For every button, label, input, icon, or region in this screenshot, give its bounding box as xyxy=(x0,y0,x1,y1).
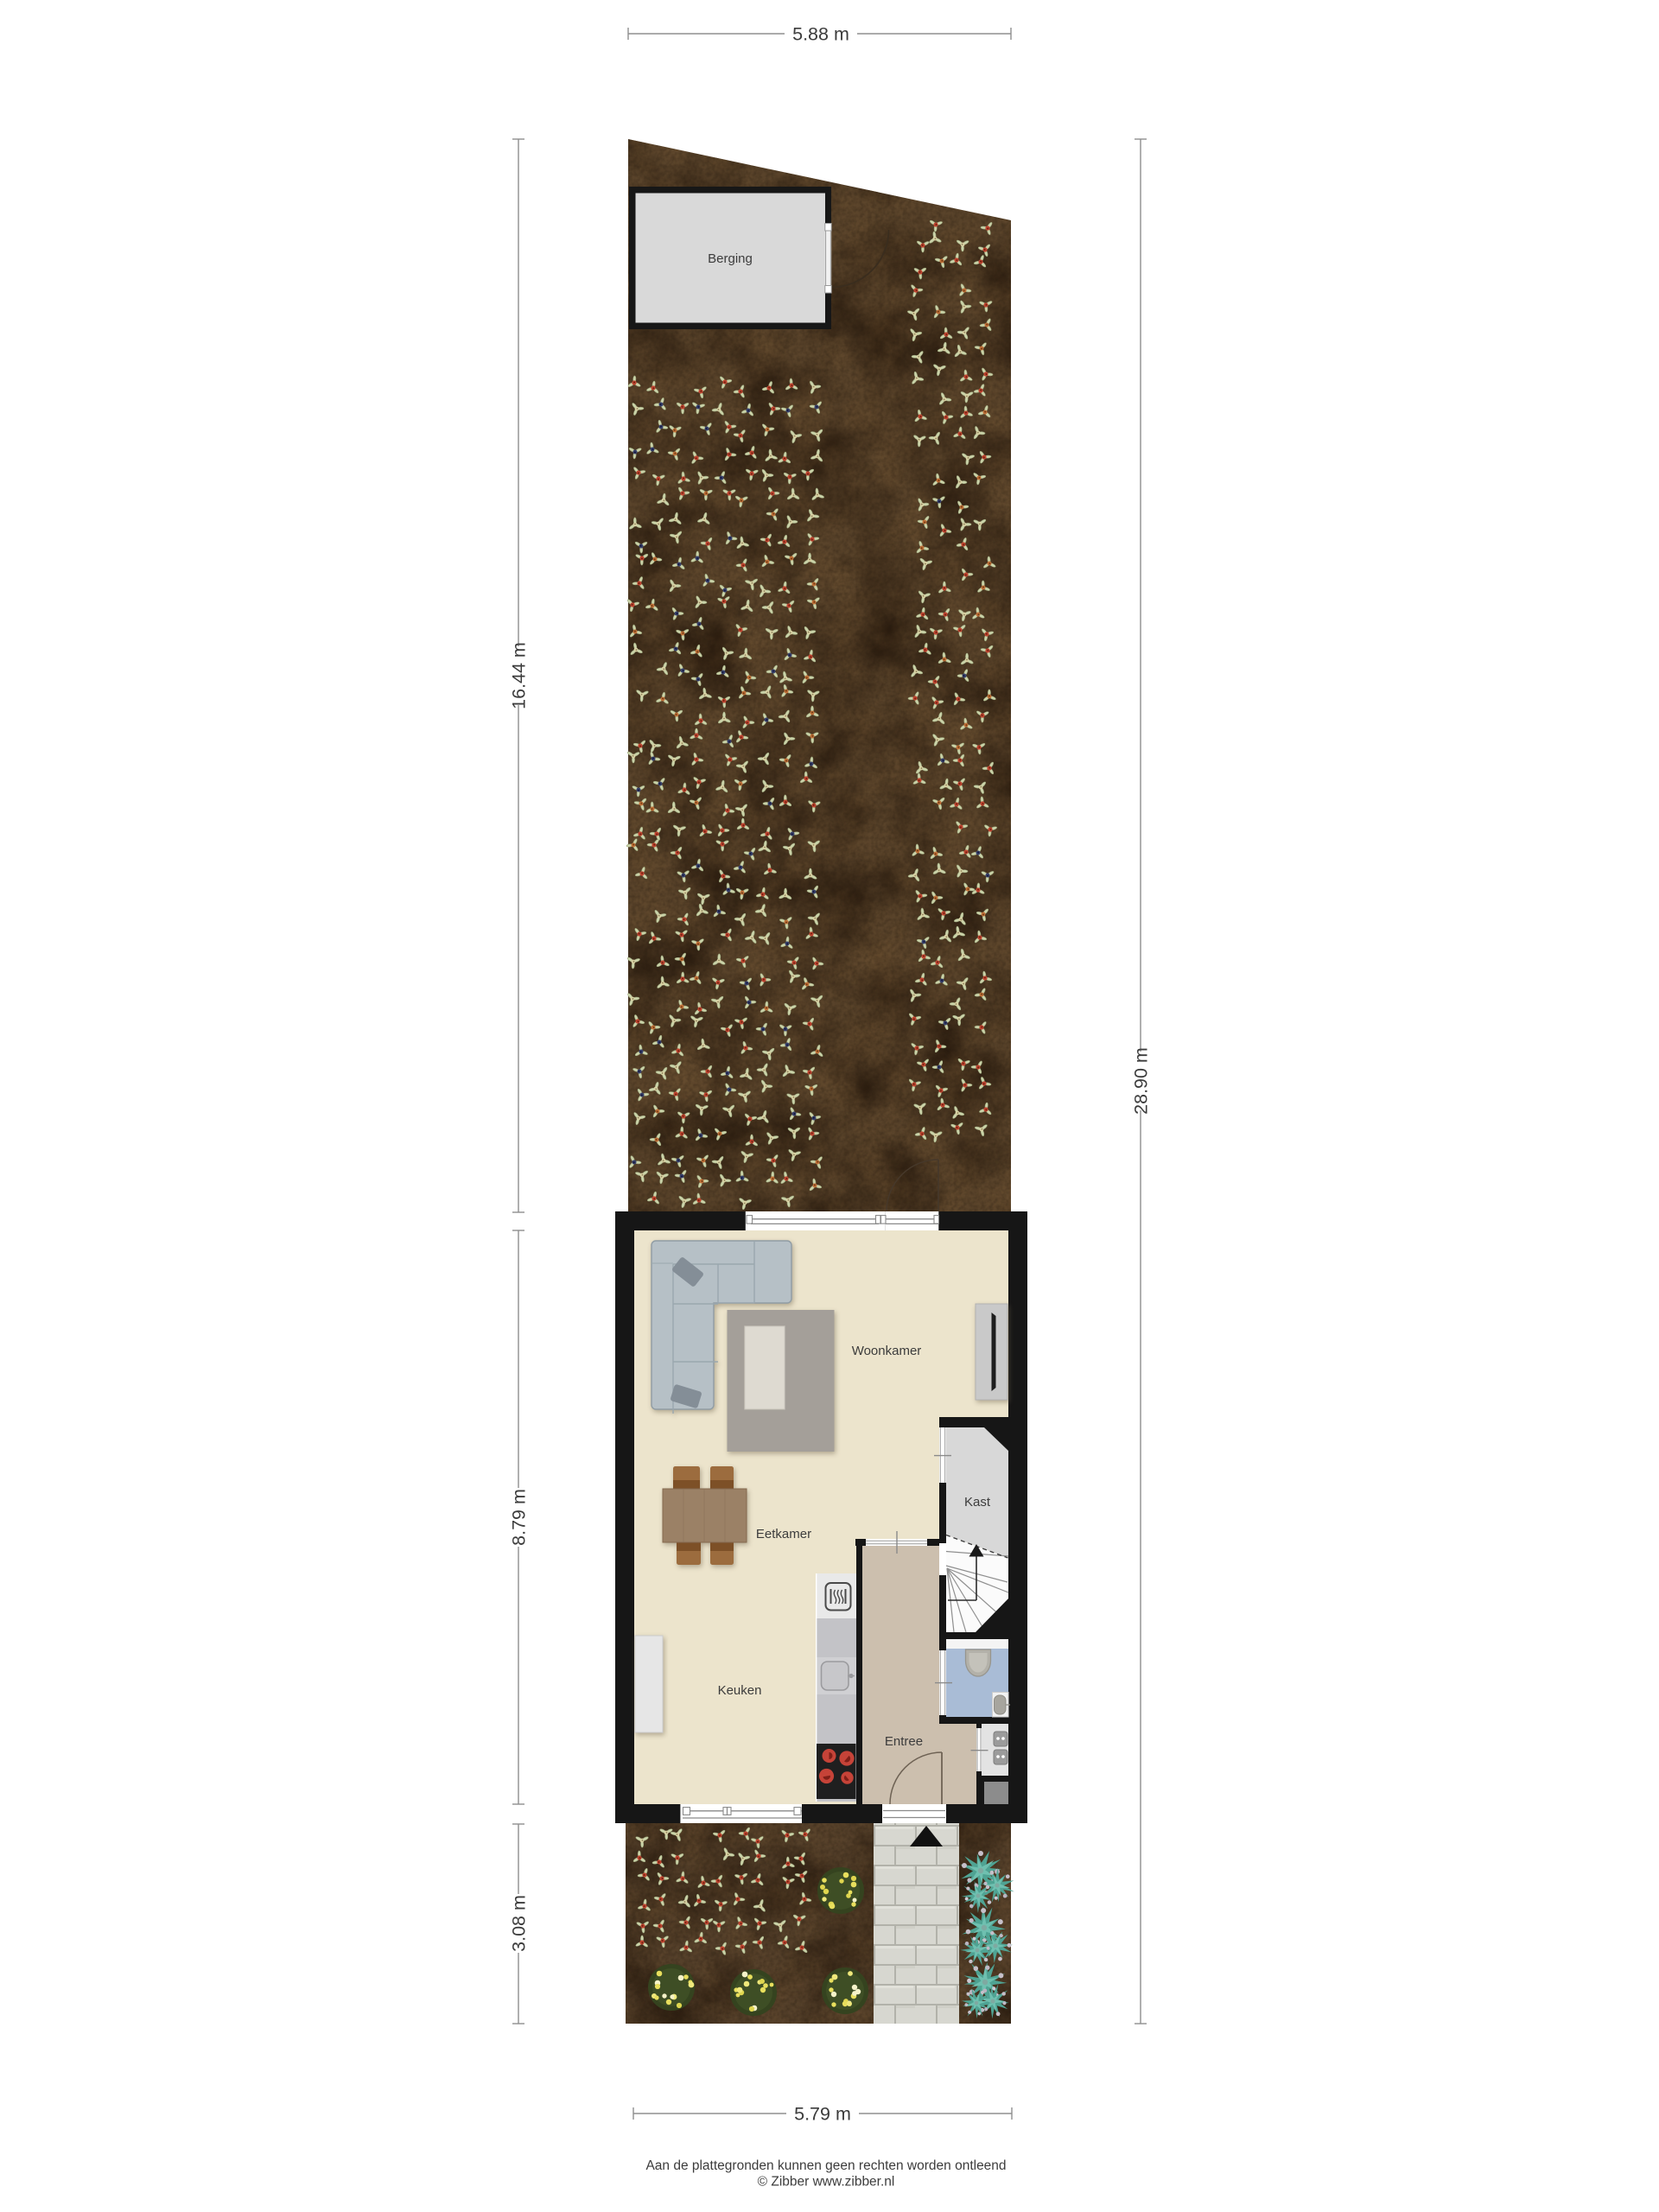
svg-text:28.90 m: 28.90 m xyxy=(1131,1047,1152,1115)
svg-text:5.79 m: 5.79 m xyxy=(794,2104,851,2125)
svg-text:16.44 m: 16.44 m xyxy=(509,642,530,709)
svg-text:Woonkamer: Woonkamer xyxy=(852,1344,922,1358)
svg-text:© Zibber www.zibber.nl: © Zibber www.zibber.nl xyxy=(758,2175,895,2190)
svg-text:8.79 m: 8.79 m xyxy=(509,1489,530,1546)
svg-text:Aan de plattegronden kunnen ge: Aan de plattegronden kunnen geen rechten… xyxy=(645,2158,1006,2173)
svg-text:5.88 m: 5.88 m xyxy=(792,24,849,45)
svg-text:Berging: Berging xyxy=(708,251,753,266)
svg-text:Kast: Kast xyxy=(964,1495,991,1510)
svg-text:Entree: Entree xyxy=(885,1734,923,1749)
svg-text:Eetkamer: Eetkamer xyxy=(756,1527,811,1541)
svg-text:3.08 m: 3.08 m xyxy=(509,1895,530,1952)
svg-text:Keuken: Keuken xyxy=(718,1683,762,1698)
